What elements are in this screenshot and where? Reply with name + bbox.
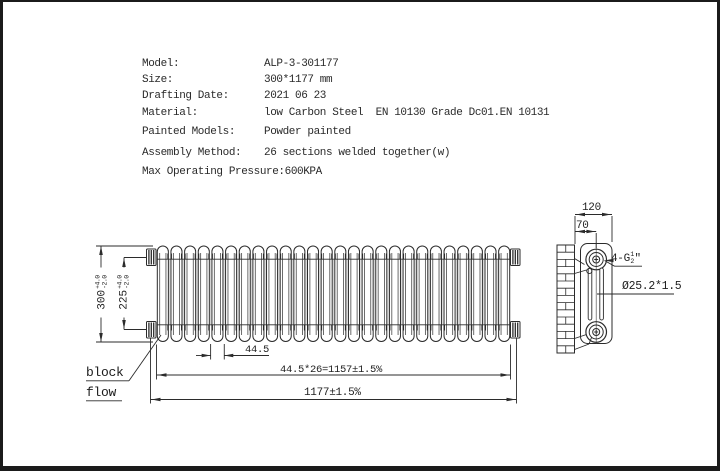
drawing-sheet: Model:ALP-3-301177 Size:300*1177 mm Draf…	[0, 0, 720, 471]
dim-sections-total: 44.5*26=1157±1.5%	[280, 364, 382, 376]
thread-suffix: "	[635, 253, 641, 265]
dim-overall-width: 1177±1.5%	[304, 387, 361, 399]
label-thread-4-g-half: 4-G 1 2 "	[611, 252, 641, 265]
dim-pipe-offset-70: 70	[576, 220, 589, 232]
tolerance-stack: +4.0 -2.0	[117, 275, 131, 289]
note-block: block	[86, 365, 124, 380]
thread-fraction: 1 2	[630, 252, 634, 265]
thread-prefix: 4-G	[611, 253, 630, 265]
dim-depth-120: 120	[582, 202, 601, 214]
dim-section-pitch: 44.5	[245, 344, 269, 356]
tol-minus: -2.0	[102, 275, 109, 289]
dim-value: 225	[118, 290, 130, 310]
dim-inner-225: 225 +4.0 -2.0	[117, 268, 132, 318]
dim-value: 300	[96, 290, 108, 310]
dim-height-300: 300 +4.0 -2.0	[95, 268, 110, 318]
note-flow: flow	[86, 385, 116, 400]
label-pipe-size: Ø25.2*1.5	[622, 280, 681, 293]
tol-minus: -2.0	[124, 275, 131, 289]
tolerance-stack: +4.0 -2.0	[95, 275, 109, 289]
frac-den: 2	[630, 259, 634, 266]
